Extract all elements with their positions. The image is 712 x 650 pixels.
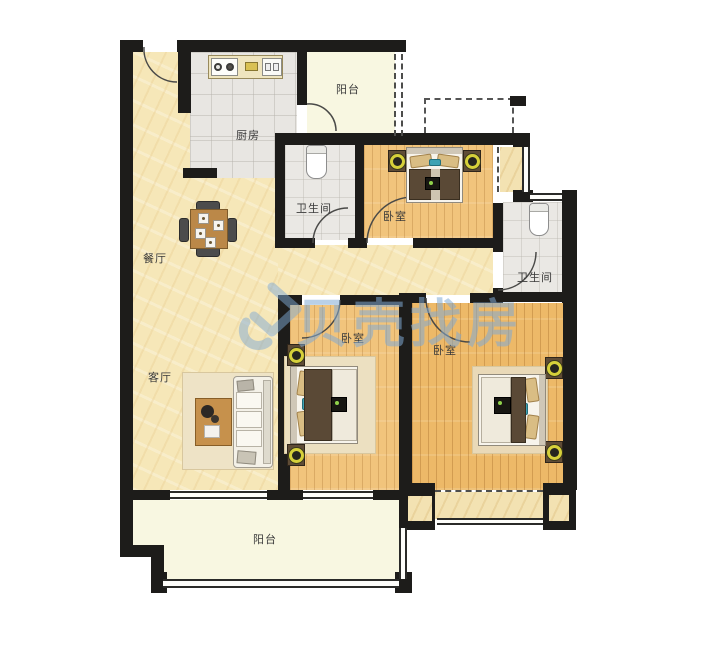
lamp-icon xyxy=(550,364,559,373)
sofa xyxy=(233,376,273,468)
balcony-door-arc xyxy=(305,102,339,134)
chair xyxy=(227,218,237,242)
tray-dot xyxy=(335,401,339,405)
window xyxy=(170,491,267,499)
label-bathroom-1: 卫生间 xyxy=(296,200,332,216)
lamp-icon xyxy=(550,448,559,457)
pillow xyxy=(524,377,539,402)
wall xyxy=(355,140,364,240)
label-kitchen: 厨房 xyxy=(236,127,260,143)
nightstand xyxy=(545,357,563,379)
floorplan-canvas: 阳台 厨房 卫生间 卧室 卫生间 餐厅 客厅 卧室 卧室 阳台 贝壳找房 xyxy=(0,0,712,650)
bed xyxy=(290,366,358,444)
dining-table xyxy=(190,209,228,249)
headboard xyxy=(407,148,462,154)
tray-dot xyxy=(429,181,433,185)
window xyxy=(399,528,407,579)
entry-door-arc xyxy=(143,45,179,83)
tray-dot xyxy=(498,401,502,405)
nightstand xyxy=(287,444,305,466)
label-dining: 餐厅 xyxy=(143,250,167,266)
bay-corner-sill xyxy=(408,496,432,521)
wall xyxy=(563,293,577,490)
nightstand xyxy=(545,441,563,463)
wall xyxy=(275,133,285,245)
basin-icon xyxy=(273,63,279,71)
pillow xyxy=(524,414,539,439)
wall xyxy=(120,40,133,557)
wall xyxy=(493,203,503,252)
accent-pillow xyxy=(429,159,441,166)
toilet-icon xyxy=(529,203,549,236)
plate-dot xyxy=(202,217,205,220)
hood-icon xyxy=(245,62,258,71)
sofa-cushion xyxy=(236,392,262,409)
window xyxy=(437,518,543,525)
plate-dot xyxy=(217,224,220,227)
headboard xyxy=(539,375,545,445)
burner-icon xyxy=(226,63,234,71)
sink-icon xyxy=(262,58,282,76)
sofa-cushion xyxy=(236,411,262,428)
toilet-tank xyxy=(530,204,548,212)
label-living: 客厅 xyxy=(148,369,172,385)
wall xyxy=(178,40,191,113)
bay-dashed-line xyxy=(435,490,543,492)
place-setting xyxy=(198,213,209,224)
bed-tray xyxy=(494,397,511,414)
watermark-text: 贝壳找房 xyxy=(296,282,524,357)
window xyxy=(163,579,399,588)
wall xyxy=(275,238,315,248)
plate-dot xyxy=(199,232,202,235)
toilet-icon xyxy=(306,145,327,179)
toilet-tank xyxy=(307,146,326,154)
window xyxy=(303,491,373,499)
lamp-icon xyxy=(393,157,402,166)
burner-icon xyxy=(214,63,222,71)
wall xyxy=(373,490,399,500)
wall xyxy=(297,52,307,105)
chair xyxy=(179,218,189,242)
lamp-icon xyxy=(468,157,477,166)
window xyxy=(530,193,562,201)
bay-dashed-line xyxy=(497,147,499,192)
kitchen-counter xyxy=(208,55,283,79)
window xyxy=(522,147,530,192)
bed xyxy=(478,374,546,446)
label-bedroom-top: 卧室 xyxy=(383,208,407,224)
blanket xyxy=(304,369,332,441)
stove-icon xyxy=(211,58,238,76)
place-setting xyxy=(213,220,224,231)
bed xyxy=(406,147,463,203)
bed-tray xyxy=(331,397,347,412)
blanket xyxy=(511,377,526,443)
tray-white xyxy=(204,425,220,438)
label-balcony-top: 阳台 xyxy=(336,81,360,97)
wall xyxy=(177,40,406,52)
floor-bay-window-bottom xyxy=(435,492,543,519)
sofa-back xyxy=(263,380,271,464)
wall xyxy=(267,490,303,500)
floor-bay-window-right xyxy=(500,147,523,192)
headboard xyxy=(291,367,297,443)
cup-icon xyxy=(211,415,219,423)
wall xyxy=(562,190,577,303)
sofa-cushion xyxy=(236,430,262,447)
basin-icon xyxy=(265,63,271,71)
lamp-icon xyxy=(292,451,301,460)
place-setting xyxy=(205,237,216,248)
bay-corner-sill xyxy=(549,495,569,521)
wall xyxy=(413,238,503,248)
wall xyxy=(513,133,530,147)
sofa-pillow xyxy=(236,379,254,392)
screen-dashed-line xyxy=(401,54,403,136)
nightstand xyxy=(463,150,481,172)
screen-dashed-line xyxy=(394,54,396,136)
wall xyxy=(510,96,526,106)
outside-patch xyxy=(108,557,152,600)
bed-tray xyxy=(425,177,440,190)
plate-dot xyxy=(209,241,212,244)
wall xyxy=(183,168,217,178)
wall xyxy=(130,490,170,500)
sofa-pillow xyxy=(236,450,256,465)
label-balcony-bottom: 阳台 xyxy=(253,531,277,547)
coffee-table xyxy=(195,398,232,446)
nightstand xyxy=(388,150,406,172)
bay-window-outline xyxy=(424,98,514,133)
